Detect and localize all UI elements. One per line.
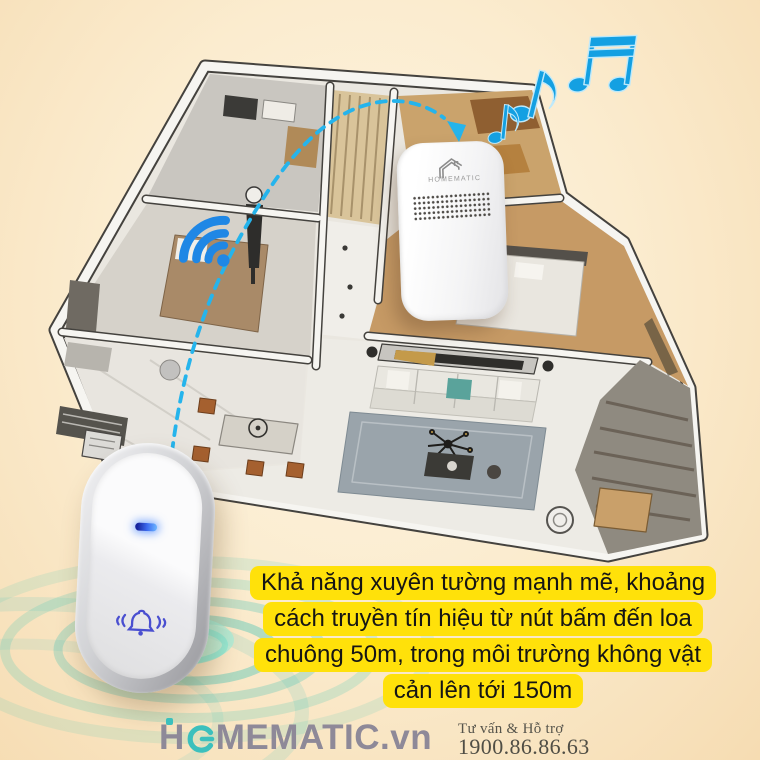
brand-text-first: H <box>159 720 185 756</box>
brand-o-ring-icon <box>186 723 215 755</box>
led-indicator <box>135 522 157 531</box>
receiver-brand-text: HOMEMATIC <box>420 175 481 184</box>
caption-line: cách truyền tín hiệu từ nút bấm đến loa <box>263 602 703 636</box>
speaker-grill <box>412 192 491 223</box>
caption-line: chuông 50m, trong môi trường không vật <box>254 638 712 672</box>
brand-dot <box>166 718 173 725</box>
support-phone: 1900.86.86.63 <box>458 737 590 757</box>
brand-logo: H MEMATIC .vn <box>159 720 432 756</box>
caption-line: Khả năng xuyên tường mạnh mẽ, khoảng <box>250 566 716 600</box>
receiver-logo: HOMEMATIC <box>396 155 504 185</box>
caption-line: cản lên tới 150m <box>383 674 584 708</box>
bell-icon <box>111 602 171 646</box>
doorbell-face <box>83 450 205 681</box>
caption-block: Khả năng xuyên tường mạnh mẽ, khoảng các… <box>246 565 720 709</box>
support-info: Tư vấn & Hỗ trợ 1900.86.86.63 <box>458 722 590 757</box>
receiver-device: HOMEMATIC <box>396 140 509 322</box>
brand-text-domain: .vn <box>380 720 432 756</box>
brand-text-rest: MEMATIC <box>216 720 380 756</box>
promo-page: HOMEMATIC Khả năn <box>0 0 760 760</box>
footer: H MEMATIC .vn Tư vấn & Hỗ trợ 1900.86.86… <box>0 718 760 760</box>
double-music-note-icon <box>565 27 637 102</box>
doorbell-button-device <box>72 440 219 697</box>
